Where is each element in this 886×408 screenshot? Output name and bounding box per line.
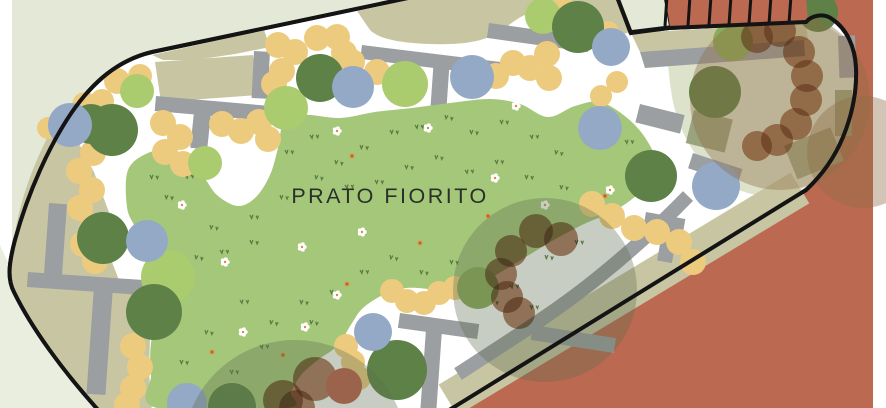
blue-tree <box>354 313 392 351</box>
light-green-tree <box>120 74 154 108</box>
orange-flower <box>418 241 423 246</box>
step-line <box>729 0 731 25</box>
canopy-olive-tree <box>453 198 637 382</box>
blue-tree <box>332 66 374 108</box>
step-line <box>769 0 771 24</box>
blue-tree <box>126 220 168 262</box>
yellow-tree <box>255 126 281 152</box>
blue-tree <box>450 55 494 99</box>
blue-tree <box>578 106 622 150</box>
site-plan-canvas: PRATO FIORITO <box>0 0 886 408</box>
orange-flower <box>345 282 350 287</box>
light-green-tree <box>188 146 222 180</box>
blue-tree <box>592 28 630 66</box>
orange-flower <box>350 154 355 159</box>
light-green-tree <box>382 61 428 107</box>
dark-green-tree <box>126 284 182 340</box>
dark-green-tree <box>86 104 138 156</box>
building-footprint <box>155 55 259 102</box>
yellow-tree <box>536 65 562 91</box>
dark-green-tree <box>77 212 129 264</box>
site-plan: PRATO FIORITO <box>0 0 886 408</box>
step-line <box>688 0 690 26</box>
step-line <box>749 0 751 24</box>
step-line <box>789 0 791 23</box>
meadow-label: PRATO FIORITO <box>291 184 488 208</box>
step-line <box>665 0 667 26</box>
step-line <box>709 0 711 25</box>
yellow-tree <box>621 215 647 241</box>
yellow-tree <box>590 85 612 107</box>
yellow-tree <box>534 41 560 67</box>
orange-flower <box>210 350 215 355</box>
dark-green-tree <box>625 150 677 202</box>
